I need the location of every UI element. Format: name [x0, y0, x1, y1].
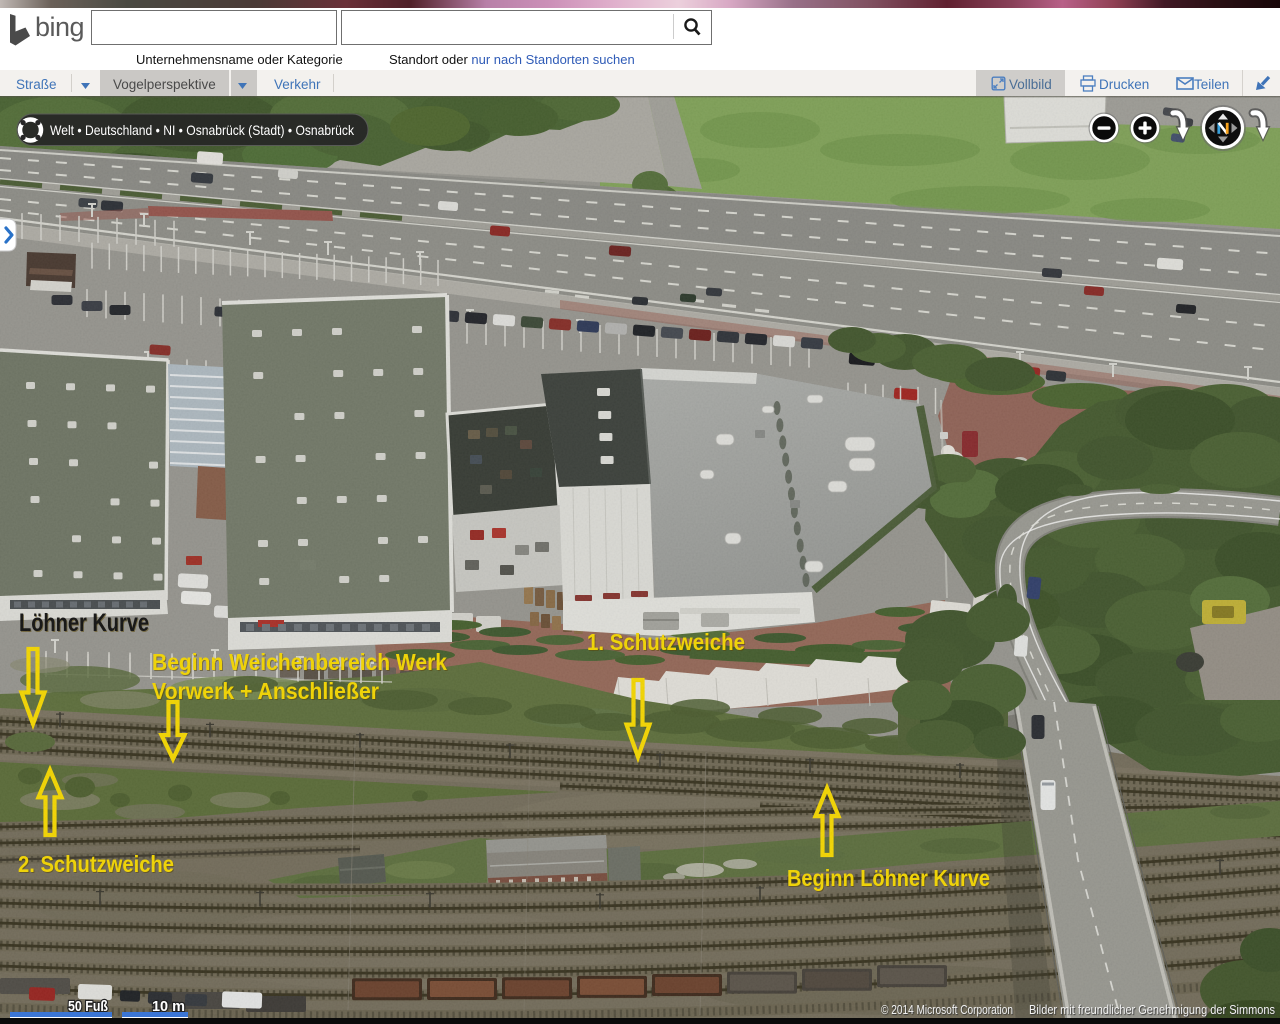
- svg-text:© 2014 Microsoft Corporation: © 2014 Microsoft Corporation: [881, 1002, 1013, 1017]
- svg-text:Welt • Deutschland • NI • Osna: Welt • Deutschland • NI • Osnabrück (Sta…: [50, 122, 355, 138]
- svg-text:Bilder mit freundlicher Genehm: Bilder mit freundlicher Genehmigung der …: [1029, 1002, 1275, 1017]
